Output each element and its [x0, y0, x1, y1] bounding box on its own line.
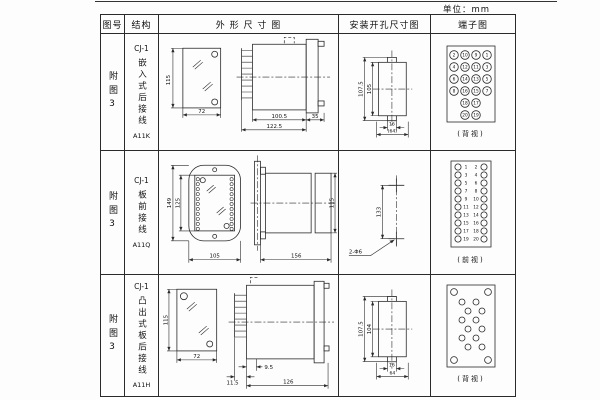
dim-tab-width: 16 — [389, 121, 395, 127]
terminal-number: 15 — [473, 88, 479, 94]
header-terminal-diagram: 端子图 — [431, 15, 515, 34]
series-label: CJ-1 — [134, 176, 149, 185]
terminal-number: 3 — [486, 64, 489, 70]
terminal-number: 14 — [473, 212, 479, 218]
model-label: A11H — [133, 381, 151, 389]
terminal-number: 4 — [453, 64, 456, 70]
model-label: A11K — [133, 132, 150, 140]
outline-cell-a11h: 115 72 9.5 11.5 — [159, 275, 339, 396]
terminal-cell-a11q: 1 3 5 7 9 11 13 15 17 19 2 4 6 8 10 12 1… — [431, 151, 515, 275]
terminal-number: 16 — [473, 220, 479, 226]
terminal-number: 15 — [463, 220, 469, 226]
outline-drawing-a11h: 115 72 9.5 11.5 — [159, 275, 338, 396]
dim-flange: 35 — [312, 113, 319, 119]
mounting-cell-a11k: 107.5 105 16 (64) — [339, 34, 431, 151]
dim-cutout-outer-h: 107.5 — [359, 81, 365, 97]
terminal-cell-a11k: 2 4 6 8 10 12 14 16 18 20 9 11 13 15 17 … — [431, 34, 515, 151]
terminal-number: 3 — [465, 172, 468, 178]
terminal-number: 2 — [453, 52, 456, 58]
terminal-cell-a11h: (背视) — [431, 275, 515, 396]
dim-hole-spacing: 133 — [377, 206, 383, 217]
figure-no-label: 附图3 — [106, 314, 119, 357]
series-label: CJ-1 — [134, 44, 149, 53]
figure-no-label: 附图3 — [106, 71, 119, 114]
hole-callout: 2-Φ6 — [349, 249, 363, 255]
dim-front-width: 105 — [209, 253, 219, 259]
outline-cell-a11q: 149 125 105 156 115 — [159, 151, 339, 275]
outline-cell-a11k: 115 72 100.5 35 — [159, 34, 339, 151]
figure-no-a11h: 附图3 — [101, 275, 125, 396]
dim-body-length: 126 — [283, 380, 294, 386]
dim-cutout-inner-h: 105 — [367, 83, 373, 93]
terminal-number: 9 — [475, 52, 478, 58]
structure-a11h: CJ-1 凸出式板后接线 A11H — [125, 275, 159, 396]
terminal-number: 20 — [462, 112, 468, 118]
mounting-cell-a11q: 133 2-Φ6 — [339, 151, 431, 275]
dimension-table: 图号 结构 外 形 尺 寸 图 安装开孔尺寸图 端子图 附图3 CJ-1 嵌入式… — [100, 14, 516, 397]
model-label: A11Q — [133, 241, 151, 249]
dim-front-width: 72 — [198, 108, 205, 114]
header-mounting-dims: 安装开孔尺寸图 — [339, 15, 431, 34]
terminal-drawing-a11k: 2 4 6 8 10 12 14 16 18 20 9 11 13 15 17 … — [431, 34, 515, 151]
structure-name: 板前接线 — [136, 190, 148, 236]
dim-cutout-outer-h: 107.5 — [359, 321, 365, 337]
terminal-number: 19 — [473, 112, 479, 118]
terminal-number: 9 — [465, 196, 468, 202]
terminal-drawing-a11q: 1 3 5 7 9 11 13 15 17 19 2 4 6 8 10 12 1… — [431, 151, 515, 275]
dim-tab-width: 16 — [389, 363, 395, 369]
terminal-number: 7 — [486, 88, 489, 94]
terminal-number: 8 — [453, 88, 456, 94]
dim-front-outer-h: 149 — [167, 197, 173, 208]
dim-front-inner-h: 125 — [175, 197, 181, 207]
terminal-number: 12 — [473, 204, 479, 210]
terminal-number: 7 — [465, 188, 468, 194]
terminal-number: 17 — [463, 228, 469, 234]
terminal-number: 11 — [463, 204, 469, 210]
terminal-number: 17 — [473, 100, 479, 106]
top-rule — [95, 1, 557, 2]
dim-pin-length: 11.5 — [227, 381, 239, 387]
dim-cutout-width: (64) — [388, 128, 398, 134]
view-label: (背视) — [457, 129, 484, 138]
dim-pin-offset: 9.5 — [264, 365, 273, 371]
terminal-number: 14 — [462, 76, 468, 82]
mounting-drawing-a11k: 107.5 105 16 (64) — [339, 34, 430, 151]
terminal-number: 18 — [462, 100, 468, 106]
terminal-number: 1 — [465, 164, 468, 170]
terminal-number: 4 — [475, 172, 478, 178]
dim-front-height: 115 — [163, 315, 169, 325]
terminal-number: 12 — [462, 64, 468, 70]
structure-name: 嵌入式后接线 — [136, 58, 148, 127]
structure-name: 凸出式板后接线 — [136, 296, 148, 377]
terminal-number: 8 — [475, 188, 478, 194]
terminal-number: 19 — [463, 236, 469, 242]
terminal-number: 18 — [473, 228, 479, 234]
dim-cutout-width: 64 — [390, 371, 396, 377]
outline-drawing-a11q: 149 125 105 156 115 — [159, 151, 338, 275]
header-outline-dims: 外 形 尺 寸 图 — [159, 15, 339, 34]
terminal-number: 6 — [475, 180, 478, 186]
outline-drawing-a11k: 115 72 100.5 35 — [159, 34, 338, 151]
terminal-number: 10 — [473, 196, 479, 202]
seal-mark-icon — [187, 302, 209, 335]
terminal-number: 5 — [465, 180, 468, 186]
view-label: (前视) — [457, 255, 484, 264]
terminal-drawing-a11h: (背视) — [431, 275, 515, 396]
clip-hook-icon — [284, 37, 294, 43]
terminal-number: 6 — [453, 76, 456, 82]
dim-body-depth: 100.5 — [272, 113, 288, 119]
terminal-number: 13 — [473, 76, 479, 82]
mounting-drawing-a11h: 107.5 104 16 64 — [339, 275, 430, 396]
figure-no-a11k: 附图3 — [101, 34, 125, 151]
structure-a11k: CJ-1 嵌入式后接线 A11K — [125, 34, 159, 151]
seal-mark-icon — [193, 60, 213, 91]
datasheet-page: 单位：mm 图号 结构 外 形 尺 寸 图 安装开孔尺寸图 端子图 附图3 CJ… — [0, 0, 600, 400]
dim-front-width: 72 — [193, 354, 200, 360]
mounting-cell-a11h: 107.5 104 16 64 — [339, 275, 431, 396]
clip-hook-icon — [250, 277, 258, 283]
dim-cutout-inner-h: 104 — [367, 323, 373, 334]
series-label: CJ-1 — [134, 282, 149, 291]
header-figure-no: 图号 — [101, 15, 125, 34]
dim-side-height: 115 — [330, 197, 336, 207]
view-label: (背视) — [457, 374, 484, 383]
terminal-number: 2 — [475, 164, 478, 170]
terminal-number: 11 — [473, 64, 479, 70]
figure-no-a11q: 附图3 — [101, 151, 125, 275]
dim-front-height: 115 — [166, 74, 172, 84]
terminal-number: 13 — [463, 212, 469, 218]
structure-a11q: CJ-1 板前接线 A11Q — [125, 151, 159, 275]
figure-no-label: 附图3 — [106, 191, 119, 234]
seal-mark-icon — [207, 185, 226, 215]
terminal-number: 1 — [486, 52, 489, 58]
header-structure: 结构 — [125, 15, 159, 34]
mounting-drawing-a11q: 133 2-Φ6 — [339, 151, 430, 275]
dim-total-depth: 122.5 — [267, 123, 283, 129]
terminal-number: 16 — [462, 88, 468, 94]
terminal-number: 10 — [462, 52, 468, 58]
terminal-number: 20 — [473, 236, 479, 242]
terminal-number: 5 — [486, 76, 489, 82]
dim-side-length: 156 — [291, 253, 302, 259]
